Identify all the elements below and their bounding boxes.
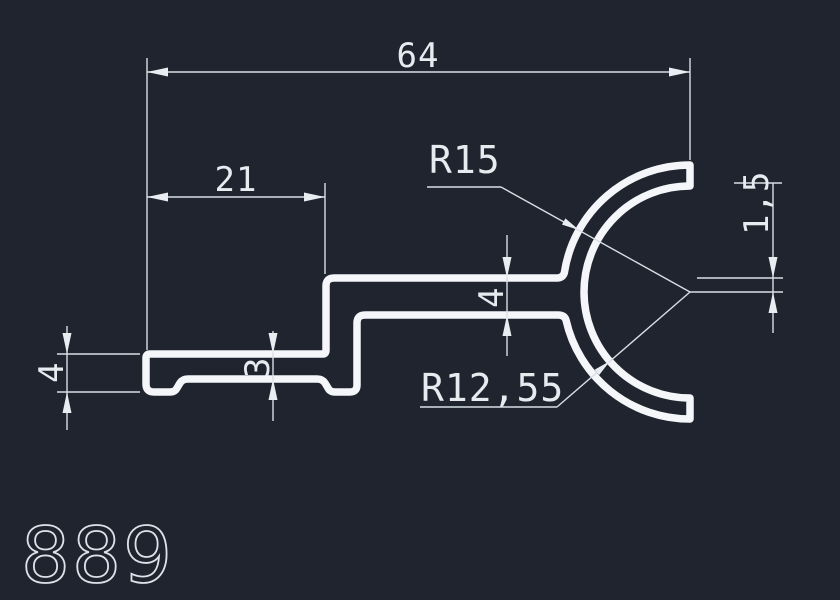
- dim-text-lip-3: 3: [238, 357, 278, 378]
- arrowhead-top: [63, 333, 72, 354]
- arrowhead-right: [669, 68, 690, 77]
- arrowhead-right: [304, 193, 325, 202]
- dim-text-web-4: 4: [472, 287, 512, 308]
- arrowhead-bottom: [769, 292, 778, 313]
- dim-text-r12-55: R12,55: [421, 366, 564, 410]
- dim-text-r15: R15: [429, 138, 501, 182]
- arrowhead-top: [769, 257, 778, 278]
- dimension-foot-length-21[interactable]: 21: [147, 160, 325, 274]
- dim-text-21: 21: [215, 160, 258, 200]
- dimension-outer-radius-r15[interactable]: R15: [427, 138, 690, 292]
- dim-text-foot-4: 4: [32, 362, 72, 383]
- arrowhead-left: [147, 193, 168, 202]
- arrowhead-left: [147, 68, 168, 77]
- cad-drawing-canvas[interactable]: 64 21 R15 R12,55 4: [0, 0, 840, 600]
- dimension-web-thickness-4[interactable]: 4: [472, 235, 512, 356]
- cad-drawing-svg: 64 21 R15 R12,55 4: [0, 0, 840, 600]
- profile-outline-path: [146, 165, 690, 419]
- leader-arrowhead: [562, 218, 579, 230]
- part-number-label: 889: [21, 512, 174, 600]
- dim-text-64: 64: [397, 36, 440, 76]
- dimension-center-offset-1-5[interactable]: 1,5: [690, 171, 783, 333]
- profile-outline[interactable]: [146, 165, 690, 419]
- dimension-foot-thickness-4[interactable]: 4: [32, 326, 140, 430]
- dim-text-offset-1-5: 1,5: [737, 171, 777, 235]
- arrowhead-bottom: [63, 392, 72, 413]
- dimension-lip-thickness-3[interactable]: 3: [238, 331, 278, 421]
